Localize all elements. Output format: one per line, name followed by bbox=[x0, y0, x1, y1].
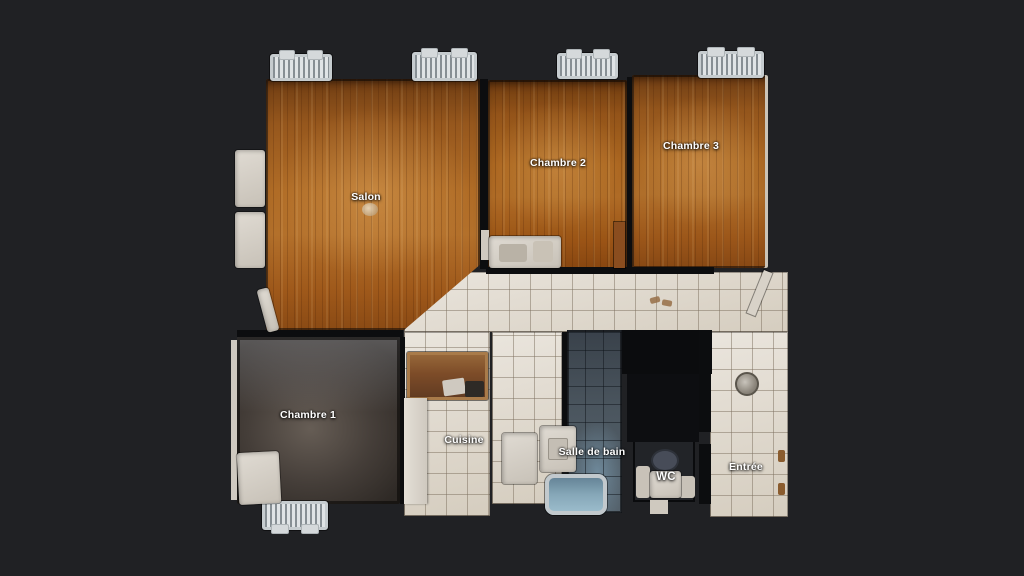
washing-machine bbox=[502, 433, 537, 484]
kitchen-cabinet bbox=[404, 398, 427, 504]
radiator-icon bbox=[412, 52, 477, 81]
radiator-icon bbox=[262, 501, 328, 530]
wall bbox=[699, 330, 711, 432]
kitchen-sink bbox=[465, 381, 484, 397]
wall bbox=[486, 267, 714, 274]
unscanned-area bbox=[627, 374, 699, 442]
counter-item bbox=[442, 378, 466, 397]
room-label-chambre-1: Chambre 1 bbox=[280, 409, 336, 421]
room-label-entree: Entrée bbox=[729, 461, 763, 473]
door-hinge bbox=[778, 450, 785, 462]
door-threshold bbox=[481, 230, 489, 260]
open-door bbox=[614, 222, 625, 268]
room-label-chambre-2: Chambre 2 bbox=[530, 157, 586, 169]
hallway-floor[interactable] bbox=[404, 272, 788, 332]
room-chambre-3[interactable] bbox=[632, 75, 768, 268]
wardrobe-content bbox=[533, 241, 553, 262]
room-label-chambre-3: Chambre 3 bbox=[663, 140, 719, 152]
wardrobe-content bbox=[499, 244, 527, 262]
floor-plan: Salon Chambre 2 Chambre 3 Chambre 1 Cuis… bbox=[0, 0, 1024, 576]
round-rug bbox=[735, 372, 759, 396]
kitchen-counter bbox=[407, 352, 488, 400]
radiator-icon bbox=[557, 53, 618, 79]
room-label-salon: Salon bbox=[351, 191, 381, 203]
bed bbox=[237, 451, 282, 505]
room-label-salle-de-bain: Salle de bain bbox=[559, 446, 626, 458]
wall bbox=[237, 330, 403, 337]
toilet bbox=[651, 449, 679, 472]
door-hinge bbox=[778, 483, 785, 495]
window-alcove bbox=[235, 150, 265, 207]
floor-patch bbox=[650, 500, 668, 514]
wall bbox=[562, 332, 567, 432]
wall bbox=[699, 444, 711, 504]
ceiling-light bbox=[362, 203, 378, 216]
bathtub bbox=[545, 474, 607, 515]
radiator-icon bbox=[698, 51, 764, 78]
floor-patch bbox=[636, 466, 650, 498]
floor-patch bbox=[679, 476, 695, 498]
room-entree[interactable] bbox=[710, 332, 788, 517]
wardrobe bbox=[489, 236, 561, 268]
window-alcove bbox=[235, 212, 265, 268]
room-label-cuisine: Cuisine bbox=[444, 434, 483, 446]
radiator-icon bbox=[270, 54, 332, 81]
room-label-wc: WC bbox=[656, 471, 676, 483]
